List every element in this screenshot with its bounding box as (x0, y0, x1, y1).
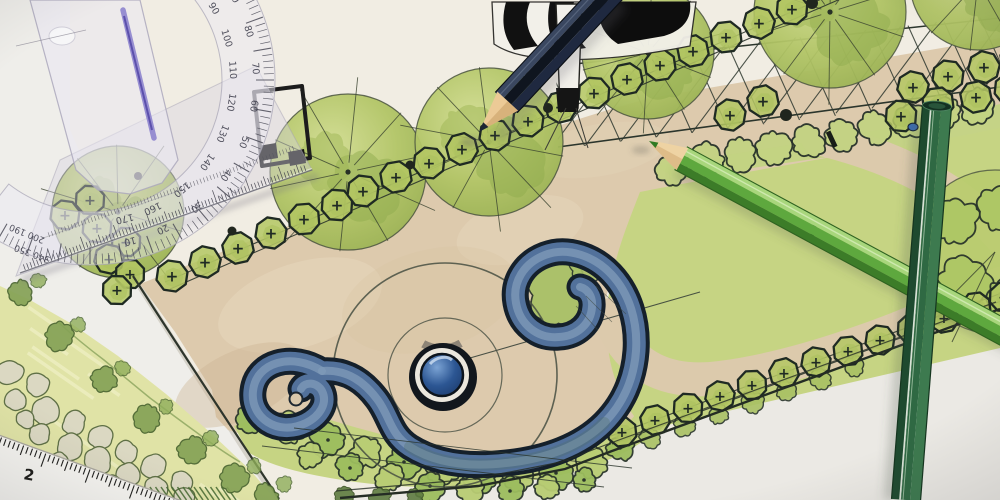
photo-vignette (0, 0, 1000, 500)
photo-landscape-plan: ++++++++++++++++++++++++++++++++++++++++… (0, 0, 1000, 500)
